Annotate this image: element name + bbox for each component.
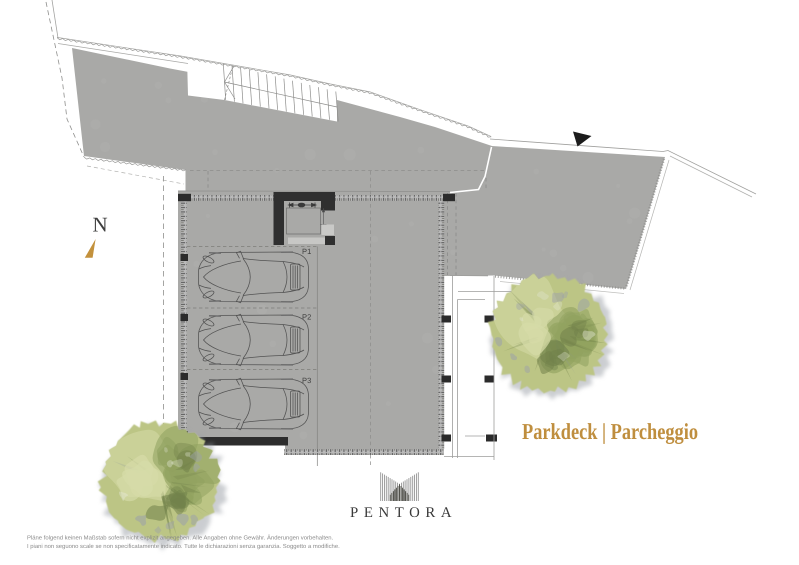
- svg-text:Parkdeck | Parcheggio: Parkdeck | Parcheggio: [522, 419, 698, 445]
- svg-text:PENTORA: PENTORA: [350, 505, 457, 521]
- svg-text:Pläne folgend keinen Maßstab s: Pläne folgend keinen Maßstab sofern nich…: [27, 535, 334, 542]
- svg-text:P1: P1: [302, 247, 311, 256]
- svg-text:I piani non seguono scale se n: I piani non seguono scale se non specifi…: [27, 543, 340, 550]
- svg-text:N: N: [93, 213, 108, 237]
